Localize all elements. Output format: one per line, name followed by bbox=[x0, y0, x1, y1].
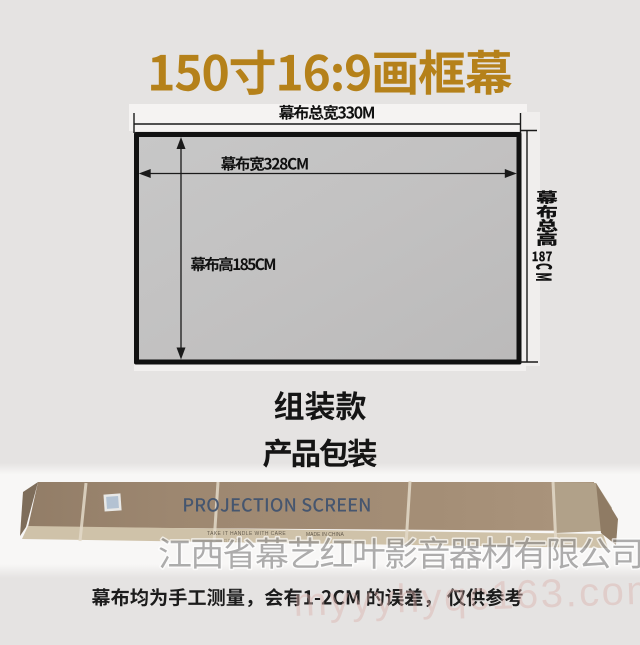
svg-text:TAKE IT HANDLE WITH CARE: TAKE IT HANDLE WITH CARE bbox=[207, 531, 286, 537]
